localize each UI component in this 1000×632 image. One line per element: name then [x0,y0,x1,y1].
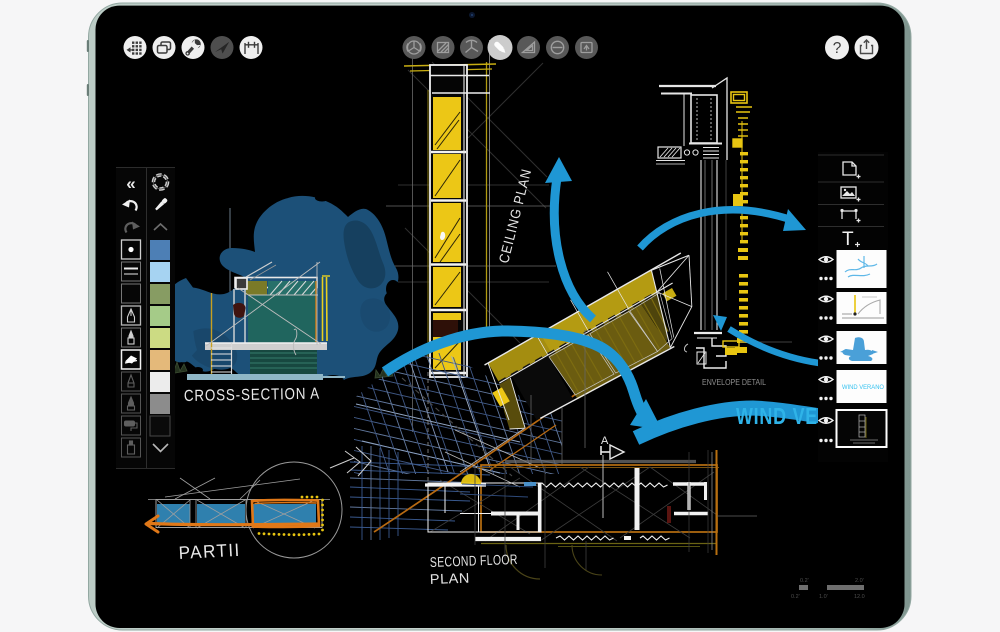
svg-text:PLAN: PLAN [430,570,471,587]
svg-text:ENVELOPE DETAIL: ENVELOPE DETAIL [702,377,766,387]
svg-text:SECOND FLOOR: SECOND FLOOR [430,551,519,570]
svg-text:PARTII: PARTII [178,540,241,563]
svg-text:2.0': 2.0' [855,578,864,584]
svg-text:0.2': 0.2' [800,578,809,584]
svg-text:CROSS-SECTION A: CROSS-SECTION A [184,386,320,405]
svg-text:WIND VERANO: WIND VERANO [842,384,884,391]
svg-text:0.2': 0.2' [791,594,800,600]
svg-text:WIND VE: WIND VE [736,403,818,429]
svg-text:?: ? [833,40,842,57]
svg-text:T: T [842,229,854,250]
svg-text:«: « [126,174,135,193]
svg-text:12.0: 12.0 [854,594,865,600]
svg-text:A: A [601,435,609,447]
svg-text:1.0': 1.0' [819,594,828,600]
